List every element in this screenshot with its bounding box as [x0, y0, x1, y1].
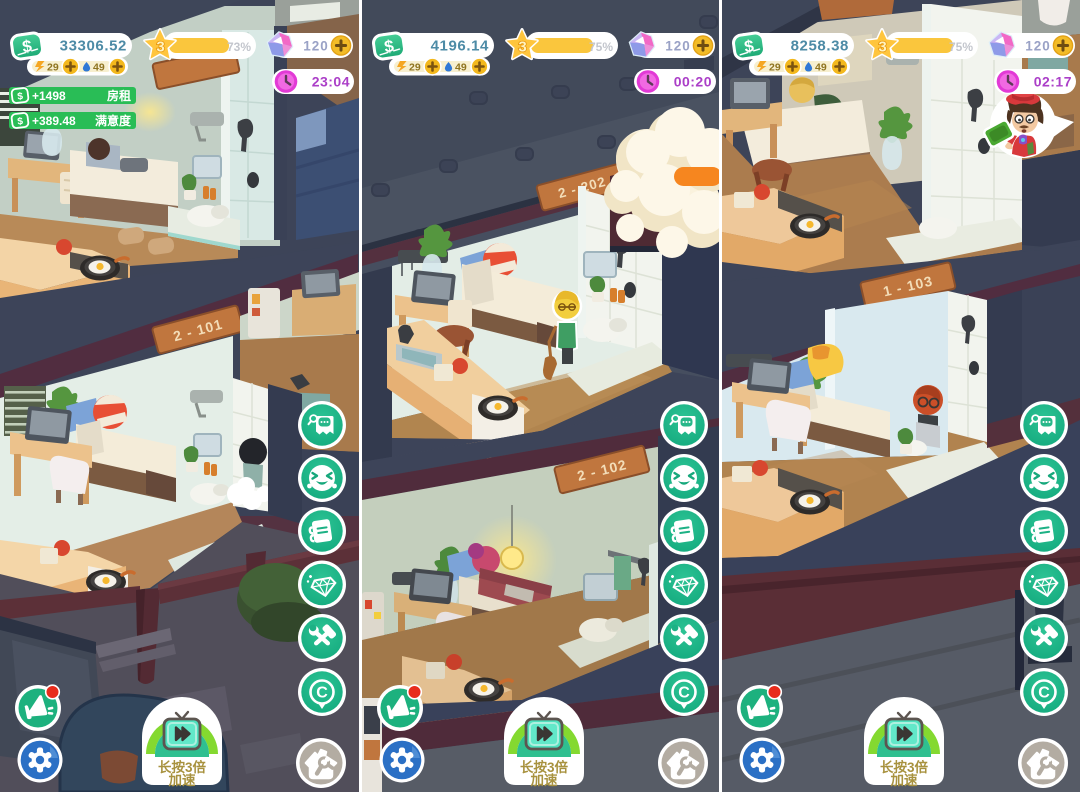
- svg-text:4196.14: 4196.14: [431, 38, 489, 55]
- svg-text:房租: 房租: [107, 88, 131, 103]
- svg-text:满意度: 满意度: [95, 113, 132, 128]
- svg-text:73%: 73%: [227, 40, 251, 54]
- svg-text:+1498: +1498: [32, 89, 66, 103]
- svg-text:75%: 75%: [949, 40, 973, 54]
- svg-text:00:20: 00:20: [674, 74, 712, 90]
- svg-text:33306.52: 33306.52: [60, 38, 127, 55]
- svg-text:02:17: 02:17: [1034, 74, 1072, 90]
- svg-text:+389.48: +389.48: [32, 114, 76, 128]
- svg-text:8258.38: 8258.38: [791, 38, 849, 55]
- svg-text:75%: 75%: [589, 40, 613, 54]
- svg-text:23:04: 23:04: [312, 74, 350, 90]
